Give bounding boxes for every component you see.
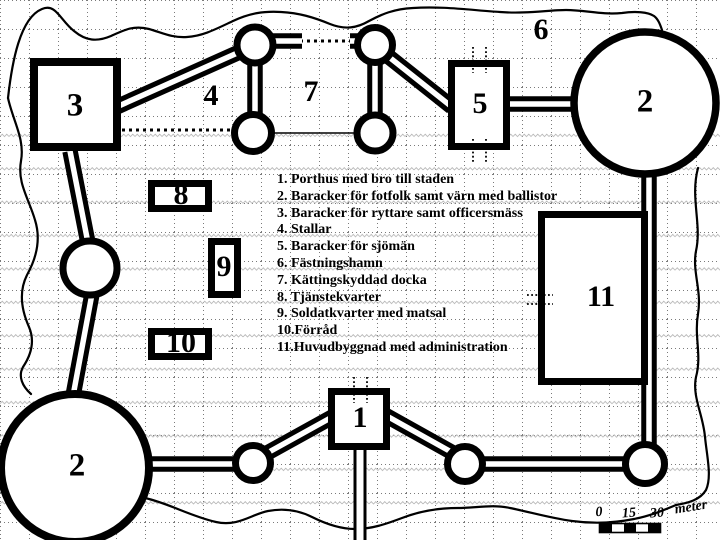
tower (63, 241, 117, 295)
tower (357, 115, 393, 151)
label-building-1: 1 (353, 403, 368, 433)
tower (235, 115, 272, 152)
legend-item: 6. Fästningshamn (277, 256, 557, 273)
label-building-10: 10 (166, 328, 196, 358)
label-building-5: 5 (473, 89, 488, 119)
label-building-4: 4 (204, 81, 219, 111)
scale-tick-15: 15 (622, 507, 637, 522)
legend-item: 8. Tjänstekvarter (277, 290, 557, 307)
legend: 1. Porthus med bro till staden 2. Barack… (277, 172, 557, 357)
legend-item: 2. Baracker för fotfolk samt värn med ba… (277, 189, 557, 206)
legend-item: 9. Soldatkvarter med matsal (277, 306, 557, 323)
tower (448, 447, 483, 482)
scale-tick-0: 0 (595, 506, 603, 520)
scale-bar-graphic (600, 524, 661, 533)
legend-item: 7. Kättingskyddad docka (277, 273, 557, 290)
legend-item: 5. Baracker för sjömän (277, 239, 557, 256)
label-area-7: 7 (304, 77, 319, 107)
tower (237, 27, 273, 63)
scale-tick-30: 30 (650, 507, 665, 522)
legend-item: 11.Huvudbyggnad med administration (277, 340, 557, 357)
label-building-9: 9 (217, 252, 232, 282)
tower (236, 446, 271, 481)
label-building-11: 11 (587, 282, 615, 312)
tower (626, 445, 665, 484)
label-area-6: 6 (534, 15, 549, 45)
label-building-8: 8 (174, 180, 189, 210)
legend-item: 3. Baracker för ryttare samt officersmäs… (277, 206, 557, 223)
fortress-map: 1 2 2 3 4 5 6 7 8 9 10 11 1. Porthus med… (0, 0, 720, 540)
legend-item: 1. Porthus med bro till staden (277, 172, 557, 189)
legend-item: 10.Förråd (277, 323, 557, 340)
label-building-3: 3 (67, 90, 84, 123)
label-building-2-sw: 2 (69, 450, 86, 483)
label-building-2-ne: 2 (637, 86, 654, 119)
tower (358, 28, 393, 63)
legend-item: 4. Stallar (277, 222, 557, 239)
